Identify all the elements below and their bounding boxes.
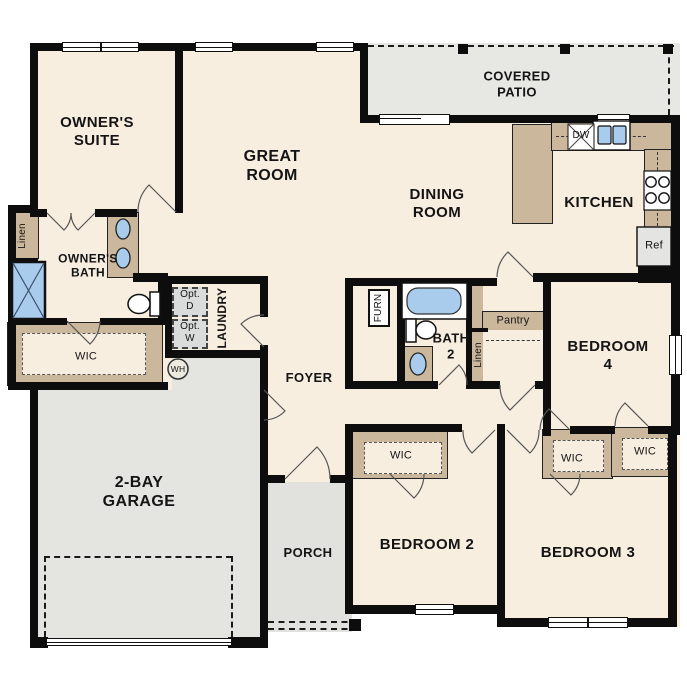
label-dishwasher: DW xyxy=(572,130,589,142)
label-porch: PORCH xyxy=(284,545,333,561)
door-coat-closet xyxy=(500,385,535,410)
owners-shower xyxy=(12,262,45,319)
label-garage: 2-BAY GARAGE xyxy=(103,473,176,511)
label-foyer: FOYER xyxy=(286,370,333,386)
bath2-tub xyxy=(402,283,467,319)
label-covered-patio: COVERED PATIO xyxy=(483,68,550,99)
label-refrigerator: Ref xyxy=(645,239,663,252)
stove xyxy=(644,171,671,210)
kitchen-sink xyxy=(593,121,630,150)
door-owners-wic xyxy=(67,321,100,344)
label-bath2: BATH 2 xyxy=(433,330,470,361)
label-wic-bedroom2: WIC xyxy=(390,449,412,462)
door-laundry xyxy=(241,315,264,347)
label-opt-washer: Opt. W xyxy=(180,321,200,345)
label-linen-hall: Linen xyxy=(473,342,485,367)
label-bedroom2: BEDROOM 2 xyxy=(380,536,474,554)
label-pantry: Pantry xyxy=(497,314,530,327)
door-front-entry xyxy=(285,447,330,479)
sink xyxy=(116,219,130,239)
sink xyxy=(116,248,130,268)
door-bedroom3-wic xyxy=(550,474,580,495)
door-bedroom4 xyxy=(540,409,570,430)
label-linen-owner: Linen xyxy=(17,223,29,248)
label-water-heater: WH xyxy=(171,364,186,374)
door-bedroom2 xyxy=(463,430,495,453)
door-bath2 xyxy=(439,365,467,385)
door-bedroom3 xyxy=(507,430,539,453)
door-bedroom4-wic xyxy=(615,403,648,426)
door-bedroom2-wic xyxy=(390,474,424,498)
label-dining-room: DINING ROOM xyxy=(410,186,465,222)
label-owners-suite: OWNER'S SUITE xyxy=(60,114,134,150)
door-owners-bath-right xyxy=(71,213,95,230)
door-dining-hall xyxy=(497,252,533,277)
label-wic-bedroom4: WIC xyxy=(634,445,656,458)
door-owners-bath-left xyxy=(47,213,71,230)
label-wic-owner: WIC xyxy=(75,350,97,363)
label-laundry: LAUNDRY xyxy=(215,287,229,348)
label-furnace: FURN xyxy=(373,294,385,323)
label-opt-dryer: Opt. D xyxy=(180,289,200,313)
label-bedroom3: BEDROOM 3 xyxy=(541,544,635,562)
door-owners-suite xyxy=(138,185,176,212)
door-garage-entry xyxy=(264,390,285,420)
bath2-toilet xyxy=(406,319,436,342)
floor-plan: OWNER'S SUITE GREAT ROOM COVERED PATIO D… xyxy=(0,0,687,687)
sink xyxy=(410,353,426,375)
label-great-room: GREAT ROOM xyxy=(244,147,301,185)
label-bedroom4: BEDROOM 4 xyxy=(567,338,648,374)
owners-toilet xyxy=(128,292,160,316)
doors xyxy=(47,185,648,498)
label-kitchen: KITCHEN xyxy=(564,194,633,212)
label-owners-bath: OWNER'S BATH xyxy=(58,252,118,281)
label-wic-bedroom3: WIC xyxy=(561,452,583,465)
